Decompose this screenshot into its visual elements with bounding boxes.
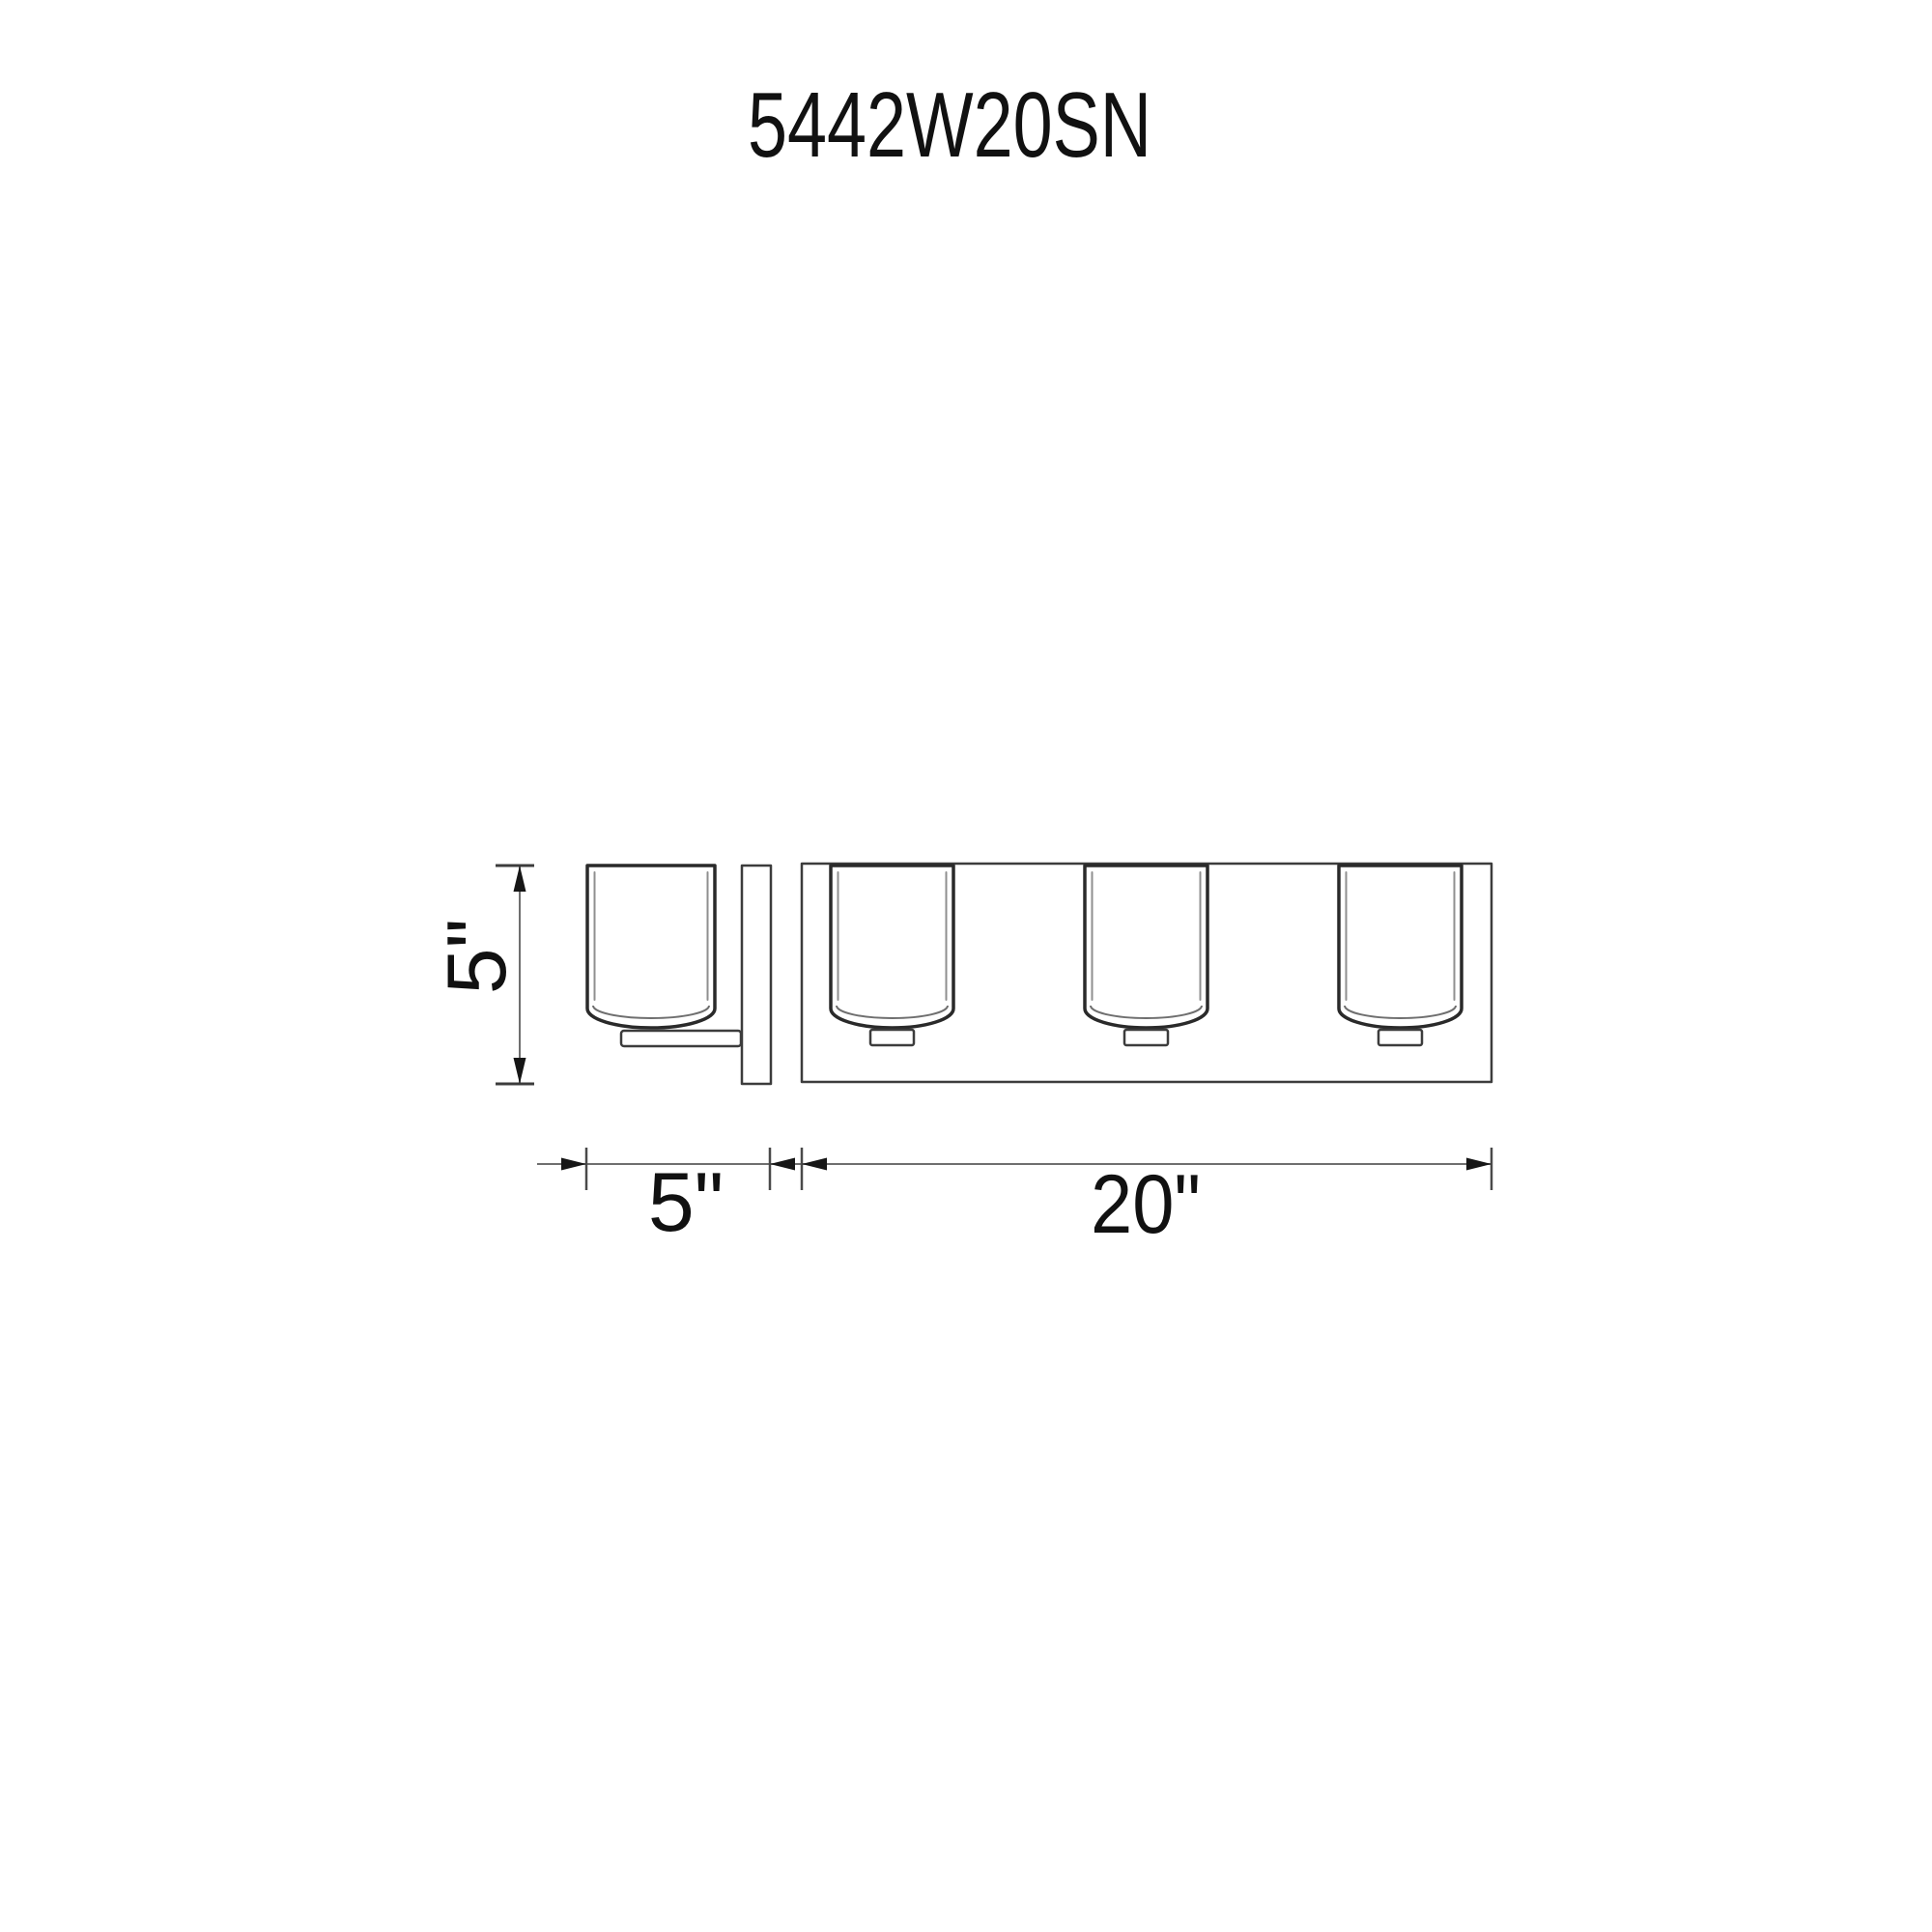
shade-glass xyxy=(831,866,953,1028)
dimension-height: 5" xyxy=(431,866,534,1084)
side-view xyxy=(587,866,771,1084)
front-shade-1 xyxy=(831,866,953,1045)
lamp-socket xyxy=(1124,1030,1168,1045)
side-shade-glass xyxy=(587,866,715,1028)
dimension-depth: 5" xyxy=(537,1148,802,1249)
wall-plate xyxy=(742,866,771,1084)
arrow-left-icon xyxy=(802,1158,827,1171)
drawing-page: 5442W20SN xyxy=(0,0,1932,1932)
front-view xyxy=(802,864,1492,1082)
lamp-socket xyxy=(1378,1030,1422,1045)
arrow-down-icon xyxy=(514,1058,526,1084)
shade-glass xyxy=(1085,866,1207,1028)
dimension-width: 20" xyxy=(802,1148,1492,1251)
shade-glass xyxy=(1339,866,1462,1028)
front-shade-2 xyxy=(1085,866,1207,1045)
mounting-arm xyxy=(621,1031,741,1046)
arrow-up-icon xyxy=(514,866,526,892)
technical-drawing: 5442W20SN xyxy=(0,0,1932,1932)
depth-dimension-label: 5" xyxy=(648,1156,724,1249)
width-dimension-label: 20" xyxy=(1091,1158,1201,1251)
model-number-title: 5442W20SN xyxy=(748,73,1151,177)
arrow-left-icon xyxy=(770,1158,795,1171)
lamp-socket xyxy=(870,1030,914,1045)
height-dimension-label: 5" xyxy=(431,919,524,994)
arrow-right-icon xyxy=(561,1158,586,1171)
arrow-right-icon xyxy=(1466,1158,1492,1171)
front-shade-3 xyxy=(1339,866,1462,1045)
